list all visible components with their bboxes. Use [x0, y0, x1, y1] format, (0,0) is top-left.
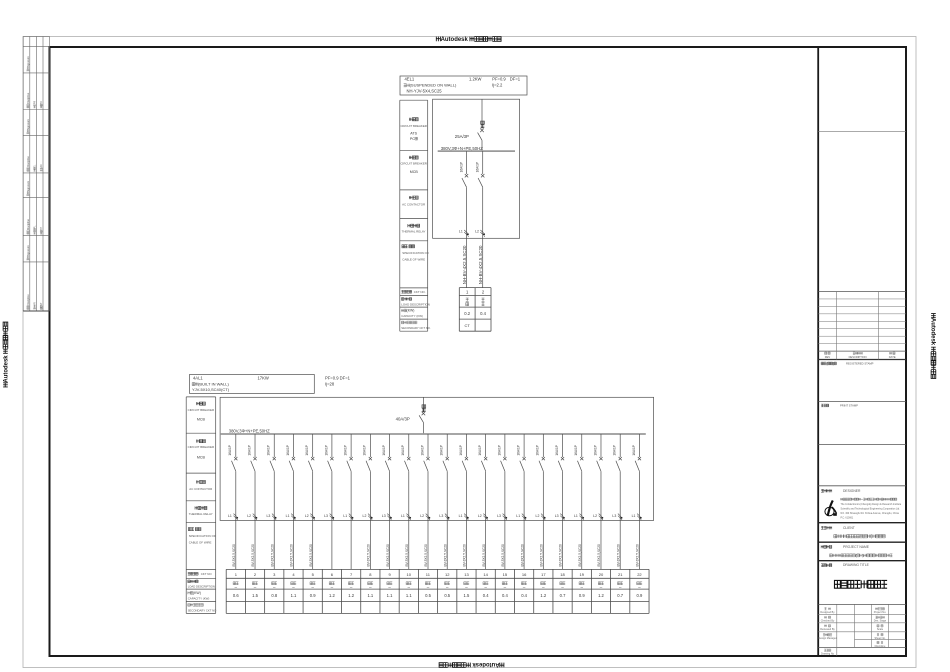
svg-text:21: 21	[618, 572, 623, 577]
svg-text:PRINT STAMP: PRINT STAMP	[840, 403, 858, 407]
svg-text:Sheet No.: Sheet No.	[874, 637, 885, 640]
svg-text:BV-3X2.5,SC20: BV-3X2.5,SC20	[290, 544, 294, 567]
svg-text:40A/3P: 40A/3P	[396, 416, 410, 421]
svg-text:20: 20	[599, 572, 604, 577]
svg-text:16A/1P: 16A/1P	[476, 162, 480, 172]
svg-text:0.5: 0.5	[444, 593, 450, 598]
svg-text:Signature: Signature	[26, 180, 30, 192]
svg-text:Autodesk: Autodesk	[930, 318, 936, 346]
svg-text:16A/1P: 16A/1P	[363, 445, 367, 455]
svg-text:ATS: ATS	[410, 132, 417, 136]
svg-text:L3: L3	[382, 514, 386, 518]
svg-text:13: 13	[464, 572, 469, 577]
svg-text:1.1: 1.1	[387, 593, 393, 598]
svg-text:P.C: 610061: P.C: 610061	[841, 517, 854, 519]
svg-text:L2: L2	[363, 514, 367, 518]
svg-text:REGISTERED STAMP: REGISTERED STAMP	[846, 361, 874, 365]
svg-text:Discipline: Discipline	[26, 294, 30, 306]
svg-text:Des. Stage: Des. Stage	[874, 620, 887, 623]
svg-text:CAPACITY (KW): CAPACITY (KW)	[188, 596, 210, 600]
svg-text:L3: L3	[612, 514, 616, 518]
svg-text:(KW): (KW)	[407, 309, 415, 313]
svg-text:1.2KW: 1.2KW	[469, 77, 482, 82]
svg-text:16A/1P: 16A/1P	[555, 445, 559, 455]
svg-text:Discipline: Discipline	[26, 218, 30, 230]
svg-text:Signature: Signature	[26, 56, 30, 68]
svg-text:L3: L3	[266, 514, 270, 518]
svg-text:AC CONTACTOR: AC CONTACTOR	[402, 203, 425, 207]
svg-text:BV-3X2.5,SC20: BV-3X2.5,SC20	[270, 544, 274, 567]
svg-text:16A/1P: 16A/1P	[440, 445, 444, 455]
svg-text:NO. 320 Shuangfu Rd. Xinhua Av: NO. 320 Shuangfu Rd. Xinhua Avenue, Chen…	[841, 512, 900, 515]
svg-text:L3: L3	[324, 514, 328, 518]
svg-text:0.2: 0.2	[464, 311, 470, 316]
svg-text:L1: L1	[632, 514, 636, 518]
svg-text:The 11 Electronics (Chengdu) D: The 11 Electronics (Chengdu) Design & Re…	[841, 503, 902, 506]
svg-text:L2: L2	[420, 514, 424, 518]
svg-text:16A/1P: 16A/1P	[613, 445, 617, 455]
svg-text:16A/1P: 16A/1P	[478, 445, 482, 455]
svg-text:TC: TC	[40, 101, 43, 105]
svg-text:CAPACITY (KW): CAPACITY (KW)	[401, 314, 423, 318]
svg-text:PROJECT NAME: PROJECT NAME	[843, 545, 870, 549]
svg-text:REV: REV	[825, 355, 831, 359]
svg-text:MCB: MCB	[197, 417, 206, 421]
svg-text:BV-3X2.5,SC20: BV-3X2.5,SC20	[482, 544, 486, 567]
svg-text:4EL1: 4EL1	[405, 77, 415, 82]
svg-text:Ij=28: Ij=28	[325, 382, 335, 387]
svg-text:CKT NO: CKT NO	[201, 572, 213, 576]
svg-text:Scientific and Technological E: Scientific and Technological Engineering…	[841, 507, 901, 510]
svg-text:BV-3X2.5,SC20: BV-3X2.5,SC20	[540, 544, 544, 567]
svg-text:16A/1P: 16A/1P	[267, 445, 271, 455]
svg-text:PF=0.9: PF=0.9	[492, 77, 506, 82]
svg-text:Scale: Scale	[877, 628, 884, 631]
svg-text:16A/1P: 16A/1P	[286, 445, 290, 455]
svg-text:1.2: 1.2	[329, 593, 335, 598]
svg-text:CKT NO.: CKT NO.	[414, 290, 426, 294]
svg-text:SECONDARY CKT NO.: SECONDARY CKT NO.	[401, 326, 431, 330]
svg-text:BV-3X2.5,SC20: BV-3X2.5,SC20	[367, 544, 371, 567]
svg-text:CIRCUIT BREAKER: CIRCUIT BREAKER	[400, 161, 426, 165]
svg-text:L2: L2	[478, 514, 482, 518]
svg-text:Signature: Signature	[26, 245, 30, 257]
svg-text:0.4: 0.4	[521, 593, 527, 598]
svg-text:CIRCUIT BREAKER: CIRCUIT BREAKER	[188, 408, 214, 412]
svg-text:0.9: 0.9	[637, 593, 643, 598]
svg-text:L2: L2	[305, 514, 309, 518]
svg-text:BV-3X2.5,SC20: BV-3X2.5,SC20	[309, 544, 313, 567]
svg-text:0.4: 0.4	[483, 593, 489, 598]
svg-text:16A/1P: 16A/1P	[632, 445, 636, 455]
svg-text:(SUSPENDED ON WALL): (SUSPENDED ON WALL)	[410, 83, 457, 88]
svg-text:BV-3X2.5,SC20: BV-3X2.5,SC20	[578, 544, 582, 567]
svg-text:THERMAL RELAY: THERMAL RELAY	[402, 230, 426, 234]
svg-text:L3: L3	[439, 514, 443, 518]
svg-text:0.6: 0.6	[233, 593, 239, 598]
svg-text:0.7: 0.7	[617, 593, 623, 598]
svg-text:0.4: 0.4	[480, 311, 486, 316]
svg-text:1.1: 1.1	[291, 593, 297, 598]
svg-text:10: 10	[407, 572, 412, 577]
svg-text:Ij=2.2: Ij=2.2	[492, 83, 503, 88]
svg-text:L1: L1	[459, 230, 463, 234]
svg-text:BV-3X2.5,SC20: BV-3X2.5,SC20	[636, 544, 640, 567]
svg-text:DATE: DATE	[889, 355, 896, 359]
svg-text:12: 12	[445, 572, 450, 577]
svg-text:L3: L3	[497, 514, 501, 518]
svg-text:PF=0.9 DF=1: PF=0.9 DF=1	[325, 376, 351, 381]
svg-text:0.9: 0.9	[579, 593, 585, 598]
svg-text:16A/1P: 16A/1P	[459, 162, 463, 172]
svg-text:L2: L2	[247, 514, 251, 518]
svg-text:16A/1P: 16A/1P	[497, 445, 501, 455]
svg-text:Project No.: Project No.	[874, 611, 887, 614]
svg-text:Discipline: Discipline	[26, 92, 30, 104]
svg-text:SPECIFICATION OF: SPECIFICATION OF	[189, 534, 216, 538]
svg-text:(KW): (KW)	[193, 591, 201, 595]
svg-text:0.8: 0.8	[271, 593, 277, 598]
svg-text:CABLE OF WIRE: CABLE OF WIRE	[189, 540, 212, 544]
svg-text:14: 14	[483, 572, 488, 577]
svg-text:16A/1P: 16A/1P	[517, 445, 521, 455]
svg-text:16A/1P: 16A/1P	[593, 445, 597, 455]
svg-text:BV-3X2.5,SC20: BV-3X2.5,SC20	[520, 544, 524, 567]
svg-text:16A/1P: 16A/1P	[228, 445, 232, 455]
svg-text:L2: L2	[475, 230, 479, 234]
svg-text:CLIENT: CLIENT	[843, 526, 855, 530]
svg-text:L1: L1	[516, 514, 520, 518]
svg-text:Discipline: Discipline	[26, 156, 30, 168]
svg-text:(BUILT IN WALL): (BUILT IN WALL)	[198, 381, 229, 386]
svg-text:AC CONTACTOR: AC CONTACTOR	[189, 487, 212, 491]
svg-text:BV-3X2.5,SC20: BV-3X2.5,SC20	[559, 544, 563, 567]
svg-text:16A/1P: 16A/1P	[401, 445, 405, 455]
svg-text:CIRCUIT BREAKER: CIRCUIT BREAKER	[400, 124, 426, 128]
svg-text:ST: ST	[40, 302, 43, 306]
svg-text:1.2: 1.2	[598, 593, 604, 598]
svg-text:L1: L1	[459, 514, 463, 518]
svg-text:DRAWING TITLE: DRAWING TITLE	[843, 563, 870, 567]
svg-text:BV-3X2.5,SC20: BV-3X2.5,SC20	[463, 544, 467, 567]
svg-text:DESIGNER: DESIGNER	[843, 489, 861, 493]
svg-text:0.7: 0.7	[560, 593, 566, 598]
svg-text:16A/1P: 16A/1P	[324, 445, 328, 455]
svg-text:BV-3X2.5,SC20: BV-3X2.5,SC20	[597, 544, 601, 567]
svg-text:16A/1P: 16A/1P	[247, 445, 251, 455]
svg-text:25A/3P: 25A/3P	[455, 134, 469, 139]
svg-text:16A/1P: 16A/1P	[574, 445, 578, 455]
svg-text:Checked By: Checked By	[821, 620, 835, 623]
svg-text:L1: L1	[401, 514, 405, 518]
svg-text:Discipline: Discipline	[875, 645, 886, 648]
svg-text:16: 16	[522, 572, 527, 577]
svg-text:1.1: 1.1	[406, 593, 412, 598]
svg-text:AR: AR	[33, 302, 36, 306]
svg-text:1.2: 1.2	[540, 593, 546, 598]
svg-text:Autodesk: Autodesk	[472, 661, 500, 667]
svg-text:L2: L2	[536, 514, 540, 518]
svg-text:16A/1P: 16A/1P	[459, 445, 463, 455]
svg-text:Autodesk: Autodesk	[3, 355, 9, 383]
svg-text:17KW: 17KW	[258, 375, 269, 380]
svg-text:PP: PP	[40, 227, 43, 231]
svg-text:L2: L2	[593, 514, 597, 518]
svg-text:BV-3X2.5,SC20: BV-3X2.5,SC20	[616, 544, 620, 567]
svg-text:1.5: 1.5	[252, 593, 258, 598]
svg-text:16A/1P: 16A/1P	[382, 445, 386, 455]
svg-text:16A/1P: 16A/1P	[536, 445, 540, 455]
svg-text:1.5: 1.5	[464, 593, 470, 598]
svg-text:BV-3X2.5,SC20: BV-3X2.5,SC20	[251, 544, 255, 567]
svg-text:Reviewed By: Reviewed By	[820, 628, 835, 631]
svg-text:MCB: MCB	[410, 170, 419, 174]
svg-text:0.9: 0.9	[310, 593, 316, 598]
svg-text:YJV-5X10,SC40(CT): YJV-5X10,SC40(CT)	[192, 387, 230, 392]
svg-text:BV-3X2.5,SC20: BV-3X2.5,SC20	[443, 544, 447, 567]
svg-text:SPECIFICATION OF: SPECIFICATION OF	[402, 251, 429, 255]
svg-text:L1: L1	[228, 514, 232, 518]
svg-text:1.2: 1.2	[348, 593, 354, 598]
svg-text:22: 22	[637, 572, 642, 577]
svg-text:CABLE OF WIRE: CABLE OF WIRE	[402, 258, 425, 262]
svg-text:AC: AC	[40, 164, 43, 168]
svg-text:0.4: 0.4	[502, 593, 508, 598]
svg-text:1.1: 1.1	[367, 593, 373, 598]
svg-text:BV-3X2.5,SC20: BV-3X2.5,SC20	[405, 544, 409, 567]
svg-text:): )	[833, 362, 834, 366]
svg-text:NH-BV-4X2.5,SC20: NH-BV-4X2.5,SC20	[462, 245, 467, 284]
svg-text:LOAD DESCRIPTION: LOAD DESCRIPTION	[401, 302, 430, 306]
svg-text:LOAD DESCRIPTION: LOAD DESCRIPTION	[188, 585, 215, 589]
svg-text:0.5: 0.5	[425, 593, 431, 598]
svg-text:BV-3X2.5,SC20: BV-3X2.5,SC20	[424, 544, 428, 567]
svg-text:380V,3Φ+N+PE,50HZ: 380V,3Φ+N+PE,50HZ	[441, 146, 484, 151]
svg-text:PR: PR	[33, 101, 36, 105]
svg-text:THERMAL RELAY: THERMAL RELAY	[189, 512, 213, 516]
svg-text:BV-3X2.5,SC20: BV-3X2.5,SC20	[232, 544, 236, 567]
svg-text:SECONDARY CKT NO: SECONDARY CKT NO	[188, 608, 217, 612]
svg-text:380V,3Φ+N+PE,50HZ: 380V,3Φ+N+PE,50HZ	[229, 429, 270, 434]
svg-text:Designed By: Designed By	[820, 611, 835, 614]
svg-text:MCB: MCB	[197, 455, 206, 459]
svg-text:Drawing No: Drawing No	[821, 653, 835, 656]
svg-text:16A/1P: 16A/1P	[344, 445, 348, 455]
svg-text:18: 18	[560, 572, 565, 577]
svg-text:L3: L3	[555, 514, 559, 518]
svg-text:Autodesk: Autodesk	[441, 37, 469, 43]
svg-text:17: 17	[541, 572, 546, 577]
svg-text:Design Manager: Design Manager	[818, 637, 837, 640]
svg-text:NH-YJV-5X4,SC25: NH-YJV-5X4,SC25	[407, 88, 443, 93]
svg-text:L1: L1	[343, 514, 347, 518]
svg-text:16A/1P: 16A/1P	[420, 445, 424, 455]
svg-text:NH-BV-4X2.5,SC20: NH-BV-4X2.5,SC20	[478, 245, 483, 284]
svg-text:16A/1P: 16A/1P	[305, 445, 309, 455]
svg-text:BV-3X2.5,SC20: BV-3X2.5,SC20	[386, 544, 390, 567]
svg-text:PC: PC	[410, 137, 415, 141]
svg-text:19: 19	[580, 572, 585, 577]
svg-text:DESCRIPTION: DESCRIPTION	[849, 355, 867, 359]
svg-text:CT: CT	[465, 323, 471, 328]
svg-text:BV-3X2.5,SC20: BV-3X2.5,SC20	[501, 544, 505, 567]
svg-text:Signature: Signature	[26, 118, 30, 130]
svg-text:15: 15	[503, 572, 508, 577]
svg-text:DF=1: DF=1	[510, 77, 521, 82]
svg-text:CIRCUIT BREAKER: CIRCUIT BREAKER	[188, 445, 214, 449]
svg-text:L1: L1	[574, 514, 578, 518]
svg-text:4AL1: 4AL1	[193, 375, 203, 380]
svg-text:L1: L1	[286, 514, 290, 518]
